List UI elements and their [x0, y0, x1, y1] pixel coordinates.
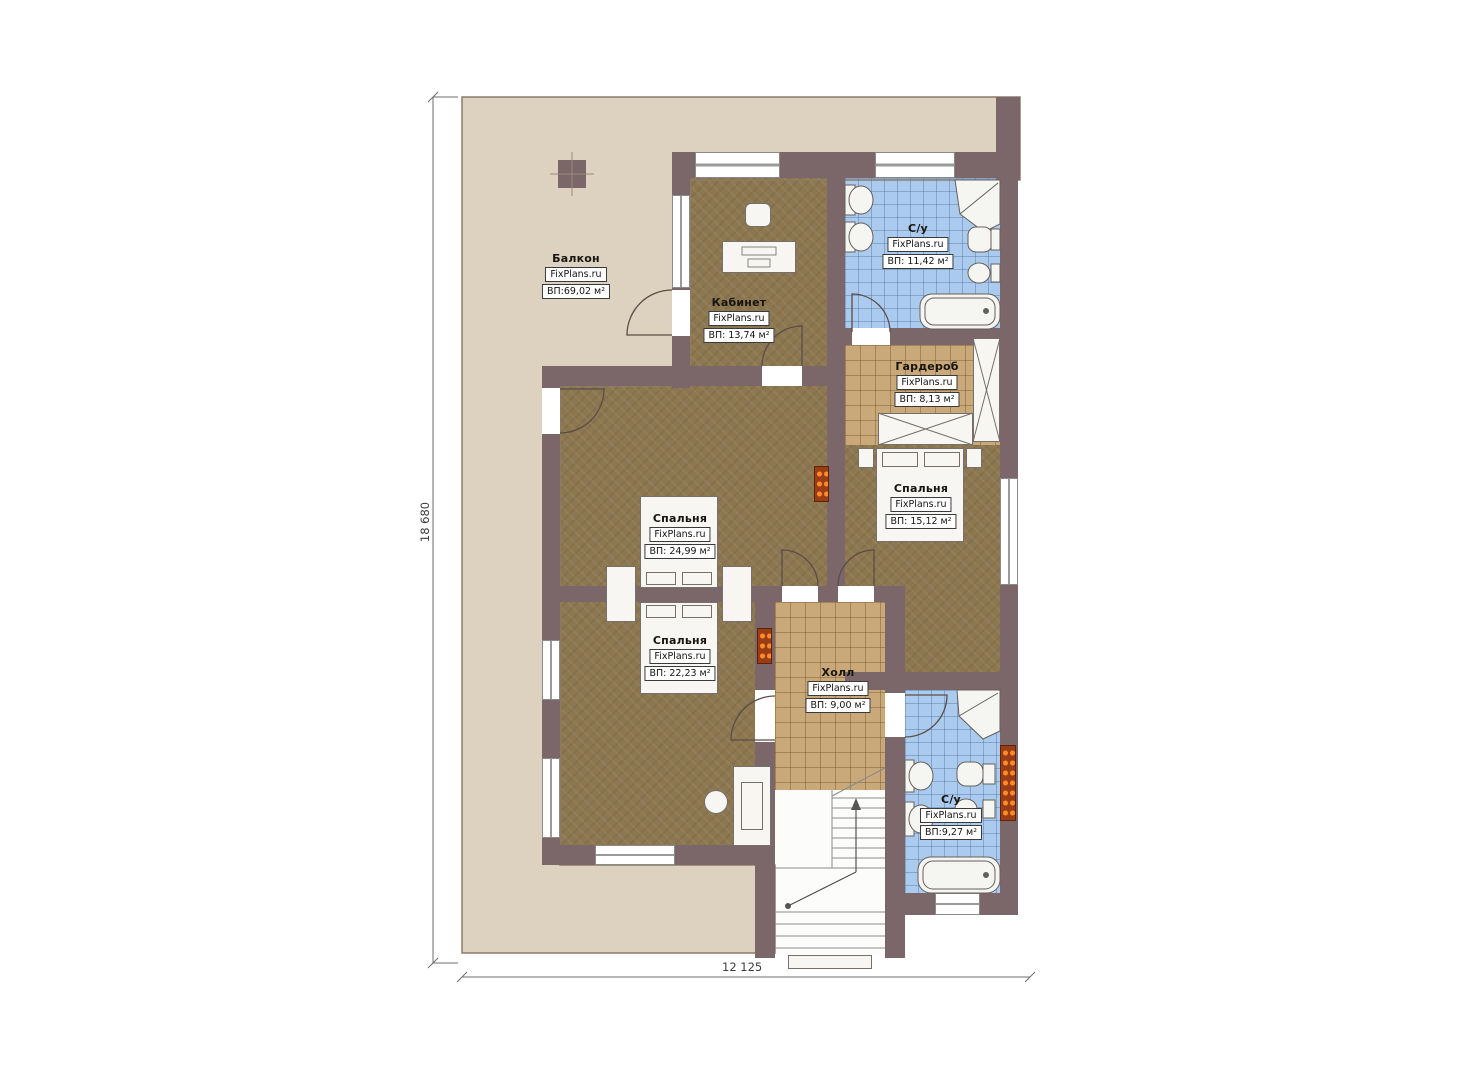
sink-icon — [849, 186, 873, 214]
area-box: ВП: 9,00 м² — [805, 698, 870, 713]
dimension-width-label: 12 125 — [722, 960, 762, 974]
room-name: Кабинет — [712, 296, 767, 309]
area-box: ВП: 11,42 м² — [882, 254, 953, 269]
toilet-icon — [968, 227, 992, 252]
sink-icon — [849, 223, 873, 251]
area-box: ВП:9,27 м² — [920, 825, 982, 840]
brand-box: FixPlans.ru — [649, 527, 710, 542]
staircase — [775, 768, 885, 948]
room-name: Спальня — [653, 512, 707, 525]
brand-box: FixPlans.ru — [890, 497, 951, 512]
area-box: ВП: 13,74 м² — [703, 328, 774, 343]
office-desk-details — [742, 247, 776, 267]
bidet-icon — [968, 263, 990, 283]
brand-box: FixPlans.ru — [708, 311, 769, 326]
shower-icon — [957, 690, 1000, 739]
room-label-bedroom-center: Спальня FixPlans.ru ВП: 24,99 м² — [644, 512, 715, 559]
plan-overlay — [0, 0, 1474, 1080]
bathroom-bottom-fixtures — [905, 690, 1000, 893]
area-box: ВП: 15,12 м² — [885, 514, 956, 529]
column-crosshair-icon — [550, 152, 594, 196]
floor-plan-canvas: Балкон FixPlans.ru ВП:69,02 м² Кабинет F… — [0, 0, 1474, 1080]
room-name: Холл — [822, 666, 855, 679]
room-label-bedroom-right: Спальня FixPlans.ru ВП: 15,12 м² — [885, 482, 956, 529]
room-name: Гардероб — [895, 360, 958, 373]
brand-box: FixPlans.ru — [920, 808, 981, 823]
area-box: ВП: 24,99 м² — [644, 544, 715, 559]
room-label-hall: Холл FixPlans.ru ВП: 9,00 м² — [805, 666, 870, 713]
room-name: Спальня — [653, 634, 707, 647]
room-label-wardrobe: Гардероб FixPlans.ru ВП: 8,13 м² — [894, 360, 959, 407]
brand-box: FixPlans.ru — [649, 649, 710, 664]
room-label-office: Кабинет FixPlans.ru ВП: 13,74 м² — [703, 296, 774, 343]
room-name: Спальня — [894, 482, 948, 495]
shower-icon — [955, 180, 1000, 232]
toilet-icon — [957, 762, 983, 786]
area-box: ВП:69,02 м² — [542, 284, 610, 299]
sink-icon — [909, 762, 933, 790]
brand-box: FixPlans.ru — [545, 267, 606, 282]
area-box: ВП: 22,23 м² — [644, 666, 715, 681]
brand-box: FixPlans.ru — [887, 237, 948, 252]
brand-box: FixPlans.ru — [896, 375, 957, 390]
room-name: Балкон — [552, 252, 600, 265]
stair-direction-arrow-icon — [785, 798, 861, 909]
room-label-bedroom-lower: Спальня FixPlans.ru ВП: 22,23 м² — [644, 634, 715, 681]
dimension-height-label: 18 680 — [418, 502, 432, 542]
brand-box: FixPlans.ru — [807, 681, 868, 696]
room-name: С/у — [908, 222, 928, 235]
area-box: ВП: 8,13 м² — [894, 392, 959, 407]
room-label-bathroom-bottom: С/у FixPlans.ru ВП:9,27 м² — [920, 793, 982, 840]
room-name: С/у — [941, 793, 961, 806]
room-label-bathroom-top: С/у FixPlans.ru ВП: 11,42 м² — [882, 222, 953, 269]
room-label-balcony: Балкон FixPlans.ru ВП:69,02 м² — [542, 252, 610, 299]
